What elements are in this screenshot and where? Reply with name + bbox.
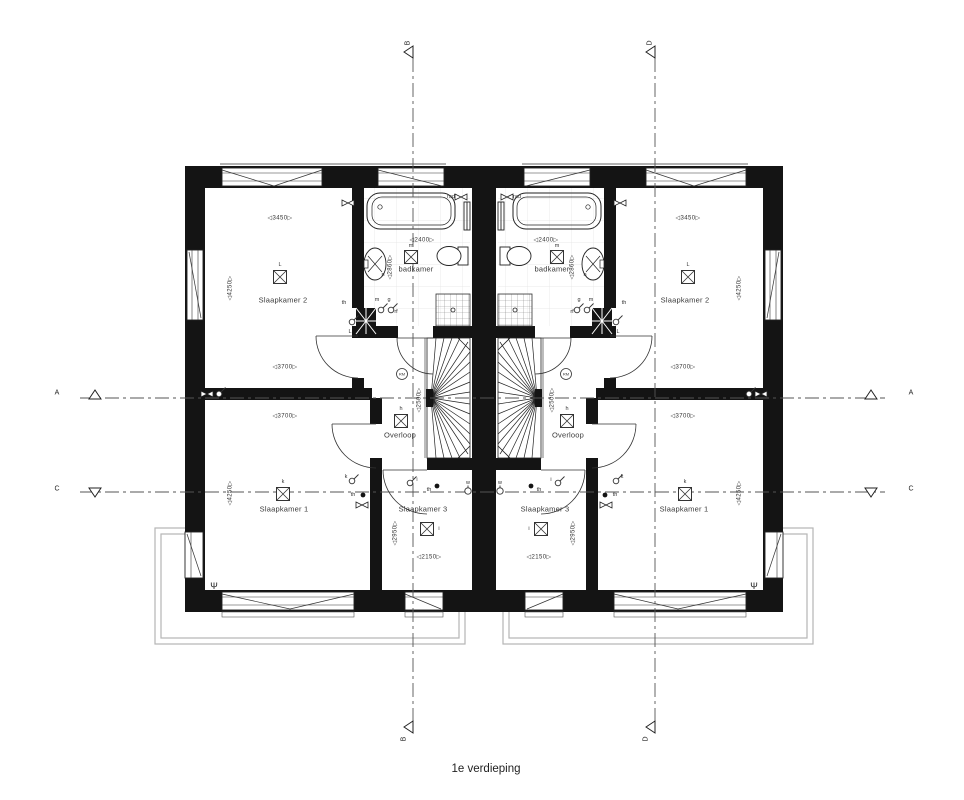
dot-symbol <box>529 484 534 489</box>
light-symbol <box>682 271 695 284</box>
light-symbol <box>679 488 692 501</box>
shower <box>436 294 470 326</box>
party-wall <box>472 166 496 612</box>
duct-shaft <box>356 308 376 334</box>
floorplan-drawing: RMRM <box>0 0 964 800</box>
dot-symbol <box>610 302 615 307</box>
svg-text:RM: RM <box>399 372 405 377</box>
light-symbol <box>277 488 290 501</box>
svg-text:RM: RM <box>563 372 569 377</box>
dwelling-right <box>484 164 783 617</box>
dwelling-left <box>185 164 484 617</box>
washbasin <box>364 248 386 280</box>
light-symbol <box>405 251 418 264</box>
light-symbol <box>535 523 548 536</box>
window-side-bedroom2 <box>187 250 203 320</box>
window-bottom-bedroom1 <box>222 592 354 617</box>
window-side-bedroom1 <box>185 532 203 578</box>
window-top-bathroom <box>378 168 444 186</box>
dot-symbol <box>361 493 366 498</box>
dot-symbol <box>435 484 440 489</box>
rm-symbol: RM <box>561 369 572 380</box>
dot-symbol <box>603 493 608 498</box>
light-symbol <box>274 271 287 284</box>
light-symbol <box>551 251 564 264</box>
light-symbol <box>395 415 408 428</box>
light-symbol <box>561 415 574 428</box>
rm-symbol: RM <box>397 369 408 380</box>
toilet <box>437 247 468 266</box>
window-bottom-bedroom3 <box>405 592 443 617</box>
light-symbol <box>421 523 434 536</box>
floorplan-canvas: RMRM 1e verdiepingAACCBDBDSlaapkamer 2Sl… <box>0 0 964 800</box>
dot-symbol <box>354 302 359 307</box>
